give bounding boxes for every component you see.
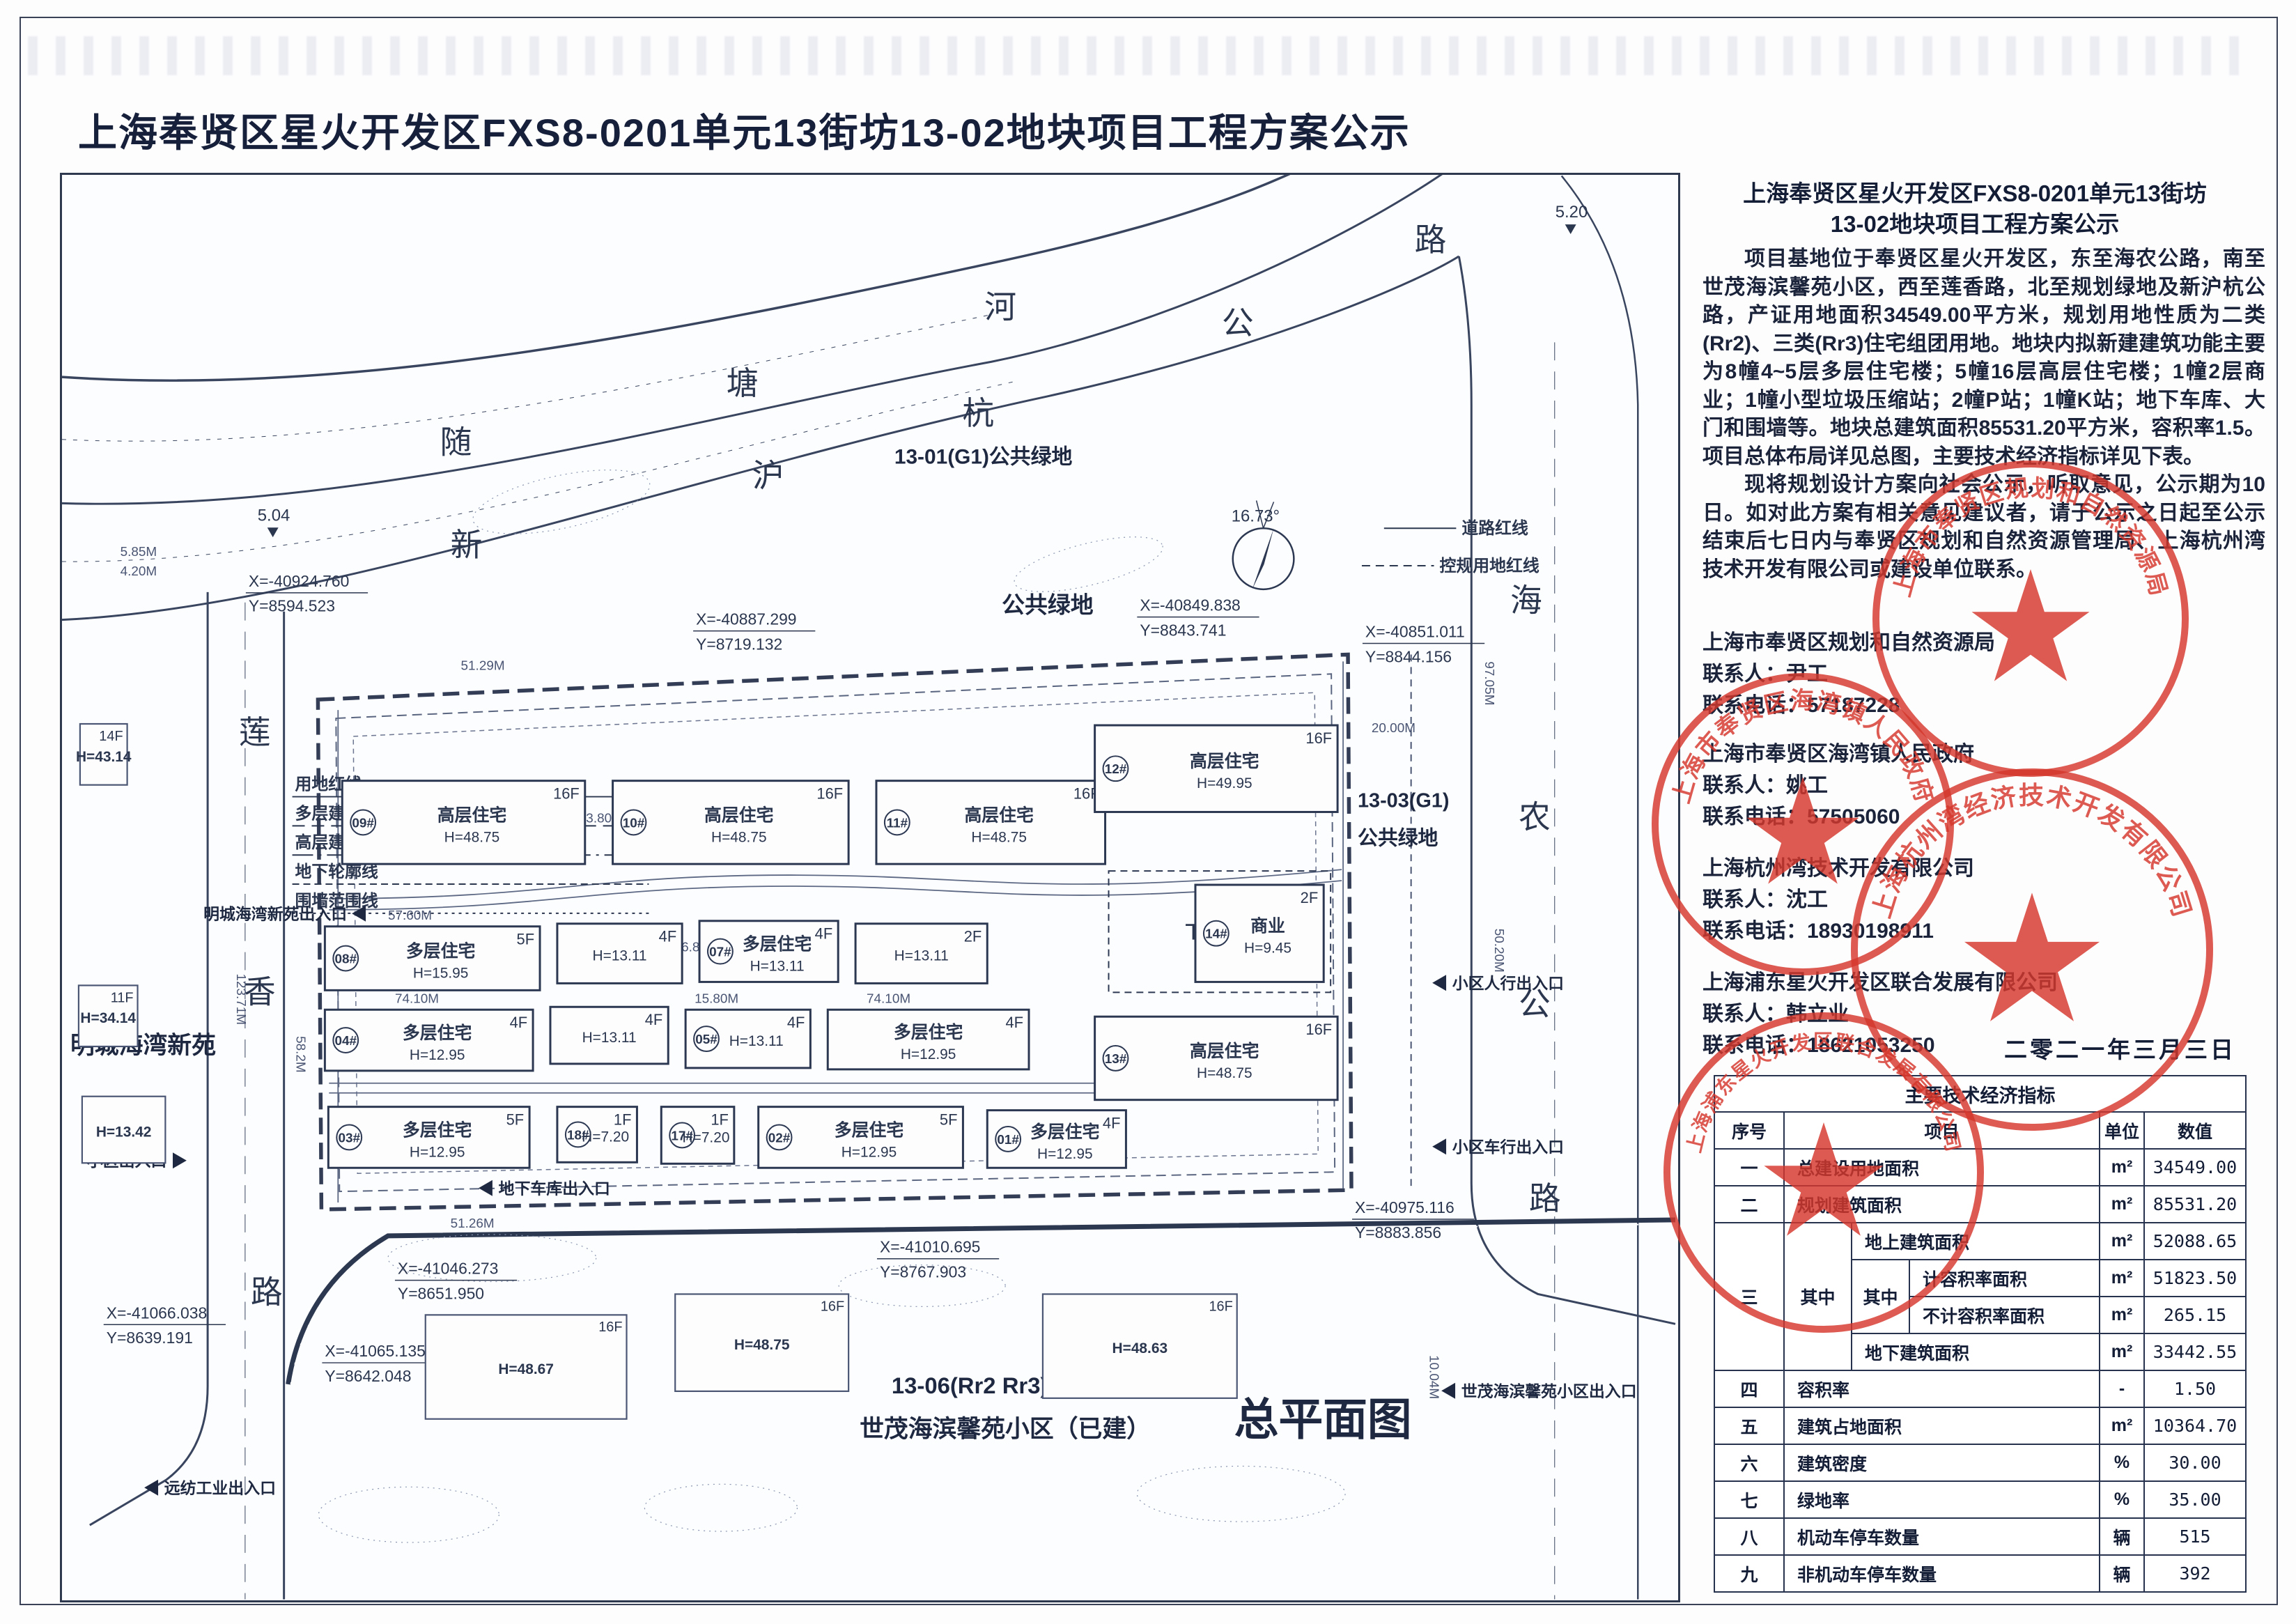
coordinate-label-y: Y=8844.156 xyxy=(1365,647,1452,665)
entrance-label: ◀ 远纺工业出入口 xyxy=(143,1479,275,1497)
contact-person: 联系人：韩立业 xyxy=(1702,998,2058,1030)
entrance-label: ◀ 世茂海滨馨苑小区出入口 xyxy=(1441,1382,1636,1400)
building-number: 01# xyxy=(997,1133,1019,1147)
row-item: 建筑占地面积 xyxy=(1784,1407,2100,1444)
row-unit: m² xyxy=(2100,1223,2144,1260)
row-item: 地下建筑面积 xyxy=(1852,1333,2100,1370)
row-unit: 辆 xyxy=(2100,1555,2144,1592)
building-use-label: 高层住宅 xyxy=(704,805,774,825)
row-value: 30.00 xyxy=(2144,1444,2246,1481)
scan-artifact xyxy=(28,36,2257,75)
table-row: 八 机动车停车数量 辆 515 xyxy=(1714,1518,2246,1555)
legend-item: 控规用地红线 xyxy=(1439,556,1539,575)
notice-sheet: 上海奉贤区星火开发区FXS8-0201单元13街坊13-02地块项目工程方案公示 xyxy=(0,0,2296,1624)
building-floors-label: 16F xyxy=(553,785,580,803)
entrance-label: 明城海湾新苑出入口 ◀ xyxy=(203,905,367,923)
row-no: 八 xyxy=(1714,1518,1784,1555)
site-plan-box: 随塘河路新沪杭公海农公路莲香路13-01(G1)公共绿地公共绿地13-03(G1… xyxy=(60,173,1680,1602)
road-name-char: 沪 xyxy=(752,458,784,493)
building-floors-label: 4F xyxy=(510,1014,528,1031)
building-use-label: 多层住宅 xyxy=(1030,1122,1100,1142)
road-name-char: 农 xyxy=(1519,799,1551,835)
row-item: 绿地率 xyxy=(1784,1481,2100,1518)
existing-building-height: H=48.63 xyxy=(1112,1340,1168,1356)
building-number: 13# xyxy=(1105,1052,1127,1067)
col-header-item: 项目 xyxy=(1784,1112,2100,1149)
row-item: 建筑密度 xyxy=(1784,1444,2100,1481)
table-row: 一 总建设用地面积 m² 34549.00 xyxy=(1714,1149,2246,1186)
road-name-char: 路 xyxy=(251,1274,283,1310)
dimension-label: 20.00M xyxy=(1372,721,1415,736)
building-floors-label: 5F xyxy=(517,931,535,948)
row-no: 三 xyxy=(1714,1223,1784,1370)
existing-building-height: H=48.75 xyxy=(734,1337,790,1353)
contact-org: 上海杭州湾技术开发有限公司 xyxy=(1702,853,1974,884)
row-unit: 辆 xyxy=(2100,1518,2144,1555)
notice-panel: 上海奉贤区星火开发区FXS8-0201单元13街坊 13-02地块项目工程方案公… xyxy=(1686,173,2289,1602)
road-name-char: 海 xyxy=(1510,583,1542,619)
row-no: 七 xyxy=(1714,1481,1784,1518)
building-height-label: H=13.11 xyxy=(593,948,647,964)
dimension-label: 5.85M xyxy=(121,545,157,559)
row-no: 六 xyxy=(1714,1444,1784,1481)
building-height-label: H=48.75 xyxy=(1197,1065,1252,1081)
building-height-label: H=9.45 xyxy=(1244,941,1291,957)
elevation-value: 5.20 xyxy=(1556,203,1588,222)
col-header-no: 序号 xyxy=(1714,1112,1784,1149)
row-unit: % xyxy=(2100,1481,2144,1518)
contact-person: 联系人：沈工 xyxy=(1702,884,1974,915)
contact-phone: 联系电话：57187228 xyxy=(1702,690,1995,721)
entrance-label: ◀ 小区车行出入口 xyxy=(1432,1138,1564,1156)
coordinate-label-y: Y=8639.191 xyxy=(107,1329,193,1347)
entrance-label: ◀ 小区人行出入口 xyxy=(1432,974,1564,992)
area-label: 13-03(G1) xyxy=(1358,789,1450,812)
dimension-label: 123.71M xyxy=(233,973,248,1025)
row-item: 容积率 xyxy=(1784,1370,2100,1407)
building-number: 04# xyxy=(334,1034,357,1049)
contact-block-2: 上海市奉贤区海湾镇人民政府 联系人：姚工 联系电话：57505060 xyxy=(1702,738,1974,833)
coordinate-label-y: Y=8719.132 xyxy=(696,635,782,653)
dimension-label: 51.26M xyxy=(451,1216,495,1231)
dimension-label: 58.2M xyxy=(293,1036,308,1073)
table-row: 九 非机动车停车数量 辆 392 xyxy=(1714,1555,2246,1592)
building-floors-label: 5F xyxy=(506,1111,525,1129)
building-height-label: H=12.95 xyxy=(410,1144,465,1160)
panel-title-line2: 13-02地块项目工程方案公示 xyxy=(1686,209,2264,240)
building-use-label: 多层住宅 xyxy=(403,1120,472,1140)
building-floors-label: 1F xyxy=(614,1111,632,1129)
existing-building-height: H=34.14 xyxy=(80,1010,136,1026)
row-item: 非机动车停车数量 xyxy=(1784,1555,2100,1592)
building-floors-label: 4F xyxy=(1006,1014,1024,1031)
panel-title-line1: 上海奉贤区星火开发区FXS8-0201单元13街坊 xyxy=(1686,178,2264,209)
row-no: 一 xyxy=(1714,1149,1784,1186)
building-floors-label: 4F xyxy=(787,1014,805,1031)
existing-building-floors: 16F xyxy=(598,1320,622,1335)
coordinate-label-y: Y=8651.950 xyxy=(398,1284,484,1302)
building-height-label: H=13.11 xyxy=(729,1033,784,1049)
area-label: 公共绿地 xyxy=(1002,592,1094,618)
row-unit: % xyxy=(2100,1444,2144,1481)
area-label: 总平面图 xyxy=(1234,1395,1412,1445)
row-unit: m² xyxy=(2100,1297,2144,1333)
contact-person: 联系人：尹工 xyxy=(1702,658,1995,690)
building-use-label: 多层住宅 xyxy=(406,941,476,961)
road-name-char: 新 xyxy=(451,527,483,563)
col-header-value: 数值 xyxy=(2144,1112,2246,1149)
building-number: 03# xyxy=(338,1131,360,1145)
building-floors-label: 4F xyxy=(815,925,833,943)
building-floors-label: 5F xyxy=(940,1111,958,1129)
building-use-label: 高层住宅 xyxy=(964,805,1034,825)
project-description: 项目基地位于奉贤区星火开发区，东至海农公路，南至世茂海滨馨苑小区，西至莲香路，北… xyxy=(1702,245,2265,471)
legend-item: 道路红线 xyxy=(1461,518,1528,538)
building-height-label: H=15.95 xyxy=(413,965,469,981)
building-use-label: 多层住宅 xyxy=(835,1120,904,1140)
coordinate-label-y: Y=8767.903 xyxy=(880,1263,966,1281)
existing-building-height: H=13.42 xyxy=(96,1124,152,1140)
indicators-table: 主要技术经济指标 序号 项目 单位 数值 一 总建设用地面积 m² 34549.… xyxy=(1714,1075,2247,1593)
table-row: 五 建筑占地面积 m² 10364.70 xyxy=(1714,1407,2246,1444)
row-among-1: 其中 xyxy=(1784,1223,1852,1370)
dimension-label: 74.10M xyxy=(867,991,910,1006)
area-label: 13-06(Rr2 Rr3) xyxy=(892,1372,1048,1398)
building-floors-label: 4F xyxy=(1103,1115,1121,1132)
road-name-char: 塘 xyxy=(727,366,759,401)
row-unit: m² xyxy=(2100,1149,2144,1186)
area-label: 13-01(G1)公共绿地 xyxy=(894,446,1073,469)
coordinate-label-x: X=-40887.299 xyxy=(696,610,796,628)
row-item: 计容积率面积 xyxy=(1909,1260,2100,1297)
coordinate-label-x: X=-40924.760 xyxy=(249,572,349,590)
contact-org: 上海市奉贤区海湾镇人民政府 xyxy=(1702,738,1974,770)
row-value: 85531.20 xyxy=(2144,1186,2246,1223)
building-height-label: H=48.75 xyxy=(444,829,500,845)
entrance-label: ◀ 地下车库出入口 xyxy=(478,1180,610,1198)
building-height-label: H=12.95 xyxy=(410,1047,465,1063)
row-item: 总建设用地面积 xyxy=(1784,1149,2100,1186)
building-height-label: H=48.75 xyxy=(711,829,767,845)
coordinate-label-x: X=-41010.695 xyxy=(880,1238,980,1256)
area-label: 世茂海滨馨苑小区（已建） xyxy=(860,1416,1151,1443)
existing-building-floors: 16F xyxy=(1209,1299,1232,1314)
dimension-label: 4.20M xyxy=(121,564,157,579)
contact-person: 联系人：姚工 xyxy=(1702,770,1974,801)
building-use-label: 多层住宅 xyxy=(743,934,812,954)
existing-building-floors: 16F xyxy=(821,1299,844,1314)
elevation-marker-icon xyxy=(267,527,279,537)
building-number: 09# xyxy=(352,816,374,830)
area-label: 公共绿地 xyxy=(1358,827,1438,849)
building-floors-label: 4F xyxy=(645,1011,663,1028)
row-item: 规划建筑面积 xyxy=(1784,1186,2100,1223)
row-item: 地上建筑面积 xyxy=(1852,1223,2100,1260)
coordinate-label-x: X=-41065.135 xyxy=(325,1342,425,1360)
road-name-char: 路 xyxy=(1415,222,1447,258)
row-value: 10364.70 xyxy=(2144,1407,2246,1444)
building-height-label: H=12.95 xyxy=(841,1144,897,1160)
building-height-label: H=49.95 xyxy=(1197,775,1252,791)
building-use-label: 商业 xyxy=(1250,916,1285,936)
dimension-label: 10.04M xyxy=(1427,1355,1441,1399)
coordinate-label-x: X=-40851.011 xyxy=(1365,623,1465,641)
row-unit: - xyxy=(2100,1370,2144,1407)
row-value: 265.15 xyxy=(2144,1297,2246,1333)
row-unit: m² xyxy=(2100,1260,2144,1297)
table-row: 二 规划建筑面积 m² 85531.20 xyxy=(1714,1186,2246,1223)
road-name-char: 公 xyxy=(1222,305,1254,341)
table-row: 三 其中 地上建筑面积 m² 52088.65 xyxy=(1714,1223,2246,1260)
row-no: 九 xyxy=(1714,1555,1784,1592)
existing-building-height: H=43.14 xyxy=(76,749,132,765)
building-height-label: H=7.20 xyxy=(582,1129,629,1145)
panel-title: 上海奉贤区星火开发区FXS8-0201单元13街坊 13-02地块项目工程方案公… xyxy=(1686,178,2264,240)
contact-org: 上海浦东星火开发区联合发展有限公司 xyxy=(1702,967,2058,998)
road-name-char: 路 xyxy=(1529,1181,1561,1216)
row-no: 五 xyxy=(1714,1407,1784,1444)
table-row: 六 建筑密度 % 30.00 xyxy=(1714,1444,2246,1481)
row-value: 35.00 xyxy=(2144,1481,2246,1518)
elevation-marker-icon xyxy=(1565,224,1576,234)
table-title: 主要技术经济指标 xyxy=(1714,1076,2246,1112)
building-number: 10# xyxy=(623,816,645,830)
building-number: 05# xyxy=(695,1033,717,1047)
building-number: 12# xyxy=(1105,762,1127,777)
building-height-label: H=12.95 xyxy=(901,1046,956,1062)
building-floors-label: 2F xyxy=(964,928,982,945)
contact-block-3: 上海杭州湾技术开发有限公司 联系人：沈工 联系电话：18930198911 xyxy=(1702,853,1974,947)
building-floors-label: 16F xyxy=(816,785,843,803)
coordinate-label-x: X=-41066.038 xyxy=(107,1304,207,1322)
road-name-char: 杭 xyxy=(962,396,994,431)
page-title: 上海奉贤区星火开发区FXS8-0201单元13街坊13-02地块项目工程方案公示 xyxy=(78,102,1411,158)
road-name-char: 河 xyxy=(984,290,1016,325)
row-unit: m² xyxy=(2100,1333,2144,1370)
coordinate-label-y: Y=8843.741 xyxy=(1140,621,1226,640)
building-floors-label: 2F xyxy=(1301,889,1319,906)
contact-phone: 联系电话：18930198911 xyxy=(1702,915,1974,947)
building-height-label: H=48.75 xyxy=(971,829,1027,845)
building-use-label: 高层住宅 xyxy=(437,805,507,825)
building-number: 08# xyxy=(334,952,357,967)
row-value: 34549.00 xyxy=(2144,1149,2246,1186)
building-height-label: H=13.11 xyxy=(750,958,805,974)
building-height-label: H=13.11 xyxy=(894,948,949,964)
building-height-label: H=13.11 xyxy=(582,1030,637,1046)
row-value: 33442.55 xyxy=(2144,1333,2246,1370)
building-height-label: H=12.95 xyxy=(1037,1146,1093,1162)
row-no: 二 xyxy=(1714,1186,1784,1223)
existing-building-height: H=48.67 xyxy=(498,1361,554,1377)
panel-body: 项目基地位于奉贤区星火开发区，东至海农公路，南至世茂海滨馨苑小区，西至莲香路，北… xyxy=(1702,245,2265,584)
building-use-label: 高层住宅 xyxy=(1190,1041,1259,1061)
row-unit: m² xyxy=(2100,1186,2144,1223)
building-use-label: 多层住宅 xyxy=(894,1022,963,1042)
contact-org: 上海市奉贤区规划和自然资源局 xyxy=(1702,627,1995,658)
building-number: 11# xyxy=(887,816,908,830)
row-value: 52088.65 xyxy=(2144,1223,2246,1260)
row-value: 515 xyxy=(2144,1518,2246,1555)
building-height-label: H=7.20 xyxy=(683,1129,730,1145)
dimension-label: 15.80M xyxy=(695,991,738,1006)
road-name-char: 随 xyxy=(440,425,472,461)
building-number: 14# xyxy=(1205,927,1227,942)
road-name-char: 莲 xyxy=(239,715,271,750)
dimension-label: 57.60M xyxy=(388,908,432,923)
north-angle-label: 16.73° xyxy=(1232,506,1280,525)
site-plan-map: 随塘河路新沪杭公海农公路莲香路13-01(G1)公共绿地公共绿地13-03(G1… xyxy=(62,175,1678,1600)
coordinate-label-x: X=-41046.273 xyxy=(398,1260,498,1278)
building-number: 02# xyxy=(768,1131,791,1145)
row-value: 51823.50 xyxy=(2144,1260,2246,1297)
building-use-label: 高层住宅 xyxy=(1190,751,1259,771)
building-floors-label: 16F xyxy=(1305,729,1332,747)
contact-block-1: 上海市奉贤区规划和自然资源局 联系人：尹工 联系电话：57187228 xyxy=(1702,627,1995,721)
row-among-2: 其中 xyxy=(1852,1260,1909,1333)
building-floors-label: 16F xyxy=(1305,1021,1332,1038)
existing-building-floors: 14F xyxy=(99,729,123,744)
coordinate-label-y: Y=8594.523 xyxy=(249,597,335,615)
table-row: 七 绿地率 % 35.00 xyxy=(1714,1481,2246,1518)
building-floors-label: 4F xyxy=(659,928,677,945)
coordinate-label-y: Y=8642.048 xyxy=(325,1367,411,1385)
table-row: 四 容积率 - 1.50 xyxy=(1714,1370,2246,1407)
building-number: 07# xyxy=(709,945,731,960)
row-value: 392 xyxy=(2144,1555,2246,1592)
contact-phone: 联系电话：57505060 xyxy=(1702,801,1974,833)
row-value: 1.50 xyxy=(2144,1370,2246,1407)
row-item: 机动车停车数量 xyxy=(1784,1518,2100,1555)
building-floors-label: 1F xyxy=(711,1111,729,1129)
elevation-value: 5.04 xyxy=(258,506,290,525)
building-use-label: 多层住宅 xyxy=(403,1023,472,1043)
dimension-label: 50.20M xyxy=(1491,929,1506,973)
dimension-label: 74.10M xyxy=(395,991,439,1006)
existing-building-floors: 11F xyxy=(111,990,134,1005)
coordinate-label-y: Y=8883.856 xyxy=(1355,1223,1441,1242)
row-unit: m² xyxy=(2100,1407,2144,1444)
dimension-label: 97.05M xyxy=(1482,661,1496,705)
col-header-unit: 单位 xyxy=(2100,1112,2144,1149)
coordinate-label-x: X=-40849.838 xyxy=(1140,596,1240,614)
coordinate-label-x: X=-40975.116 xyxy=(1355,1198,1455,1216)
publicity-statement: 现将规划设计方案向社会公示，听取意见，公示期为10日。如对此方案有相关意见建议者… xyxy=(1702,471,2265,584)
row-item: 不计容积率面积 xyxy=(1909,1297,2100,1333)
dimension-label: 51.29M xyxy=(461,658,505,673)
row-no: 四 xyxy=(1714,1370,1784,1407)
notice-date: 二零二一年三月三日 xyxy=(1686,1031,2236,1065)
